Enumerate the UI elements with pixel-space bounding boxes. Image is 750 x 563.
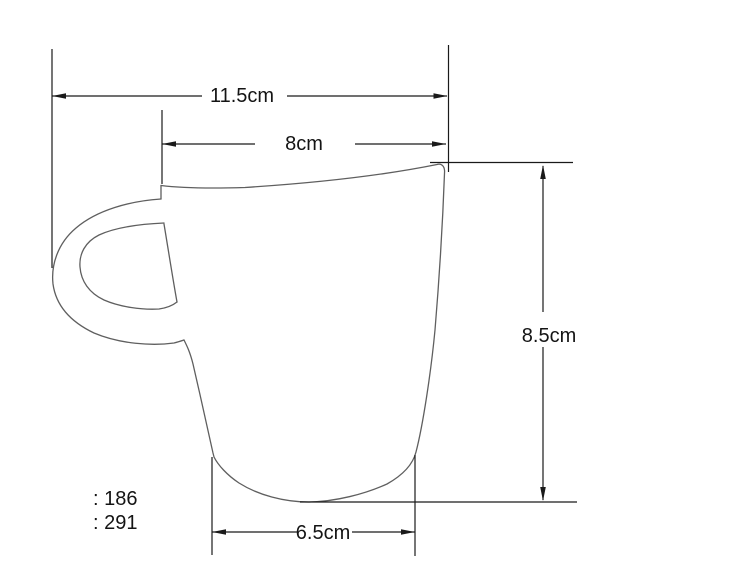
mug-dimension-drawing: 11.5cm 8cm 8.5cm 6.5cm : 186 : 291 (0, 0, 750, 563)
dim-label-total-width: 11.5cm (210, 85, 274, 107)
dim-label-rim-width: 8cm (285, 133, 323, 155)
drawing-canvas: 11.5cm 8cm 8.5cm 6.5cm : 186 : 291 (0, 0, 750, 563)
note-line-2: : 291 (93, 512, 137, 534)
dim-label-base-width: 6.5cm (296, 522, 350, 544)
note-line-1: : 186 (93, 488, 137, 510)
dim-label-height: 8.5cm (522, 325, 576, 347)
